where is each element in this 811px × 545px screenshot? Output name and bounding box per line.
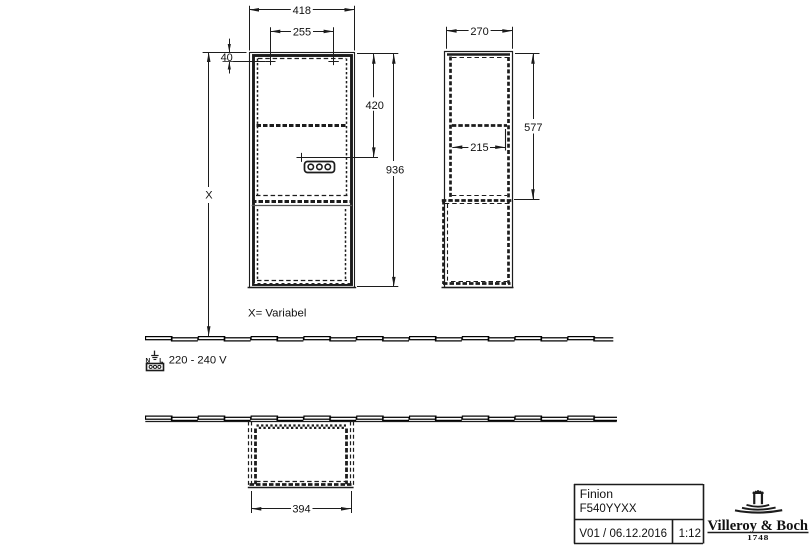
svg-text:Villeroy & Boch: Villeroy & Boch [708,518,809,534]
svg-text:F540YYXX: F540YYXX [580,503,637,515]
svg-text:936: 936 [386,165,404,177]
svg-text:255: 255 [293,26,311,38]
svg-text:220 - 240 V: 220 - 240 V [169,355,227,367]
svg-text:40: 40 [221,52,233,64]
svg-text:Finion: Finion [580,487,613,501]
svg-text:577: 577 [524,122,542,134]
svg-text:V01 / 06.12.2016: V01 / 06.12.2016 [579,528,667,540]
svg-text:420: 420 [366,100,384,112]
svg-text:270: 270 [470,26,488,38]
svg-text:X: X [205,189,213,201]
svg-text:215: 215 [470,142,488,154]
svg-text:1748: 1748 [747,533,769,542]
svg-text:394: 394 [292,504,310,516]
svg-text:N: N [146,357,151,364]
svg-text:418: 418 [293,5,311,17]
svg-text:L: L [159,358,163,365]
svg-text:X= Variabel: X= Variabel [248,307,306,319]
svg-text:1:12: 1:12 [679,528,701,540]
